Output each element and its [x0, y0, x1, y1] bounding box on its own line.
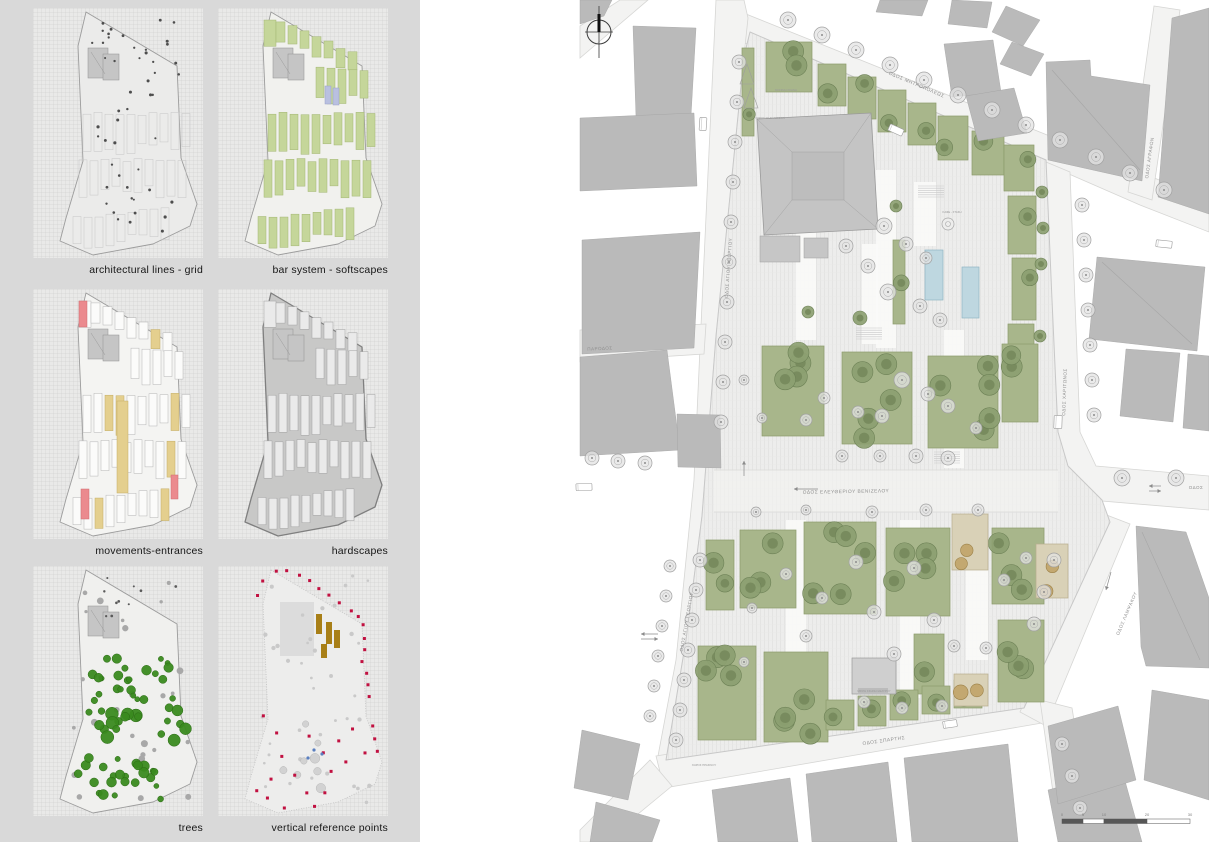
context-building — [1120, 349, 1180, 422]
context-building — [1089, 257, 1205, 351]
scale-tick-label: 30 — [1188, 812, 1193, 817]
street-label: ΟΔΟΣ — [1189, 485, 1204, 490]
diagram-bar-system-softscapes — [218, 8, 388, 258]
plan-annotation: ΧΩΡΟΣ ΕΚΔΗΛΩΣΕΩΝ — [755, 116, 785, 120]
plan-annotation: ΜΙΚΡΗ ΣΚΗΝΗ ΘΕΑΤΡΟΥ — [857, 689, 890, 693]
diagram-trees — [33, 566, 203, 816]
context-building — [904, 744, 1018, 842]
context-building — [582, 232, 700, 354]
concept-thumb-hardscapes: hardscapes — [218, 289, 388, 557]
caption-vertical-reference-points: vertical reference points — [218, 823, 388, 834]
context-building — [944, 40, 1001, 97]
concept-thumb-trees: trees — [33, 566, 203, 834]
green-bar — [1012, 258, 1036, 320]
caption-trees: trees — [33, 823, 203, 834]
caption-movements-entrances: movements-entrances — [33, 546, 203, 557]
diagram-vertical-reference-points — [218, 566, 388, 816]
fountain — [942, 218, 954, 230]
caption-hardscapes: hardscapes — [218, 546, 388, 557]
context-building — [580, 113, 697, 191]
scale-tick-label: 20 — [1145, 812, 1150, 817]
plan-annotation: ΜΟΝΙΜΗ ΣΚΗΝΗ — [775, 88, 797, 92]
concept-thumb-movements-entrances: movements-entrances — [33, 289, 203, 557]
plan-annotation: ΚΑΦΕ - ΣΤΑΣΗ — [942, 210, 961, 214]
concept-thumb-architectural-lines-grid: architectural lines - grid — [33, 8, 203, 276]
scale-tick-label: 10 — [1102, 812, 1107, 817]
annex-building — [804, 238, 828, 258]
diagram-architectural-lines-grid — [33, 8, 203, 258]
car — [699, 117, 707, 130]
context-building — [948, 0, 992, 28]
green-bar — [1008, 196, 1036, 254]
car — [576, 483, 592, 491]
paving-strip — [914, 182, 936, 246]
context-building — [580, 350, 680, 456]
diagram-movements-entrances — [33, 289, 203, 539]
concept-thumb-bar-system-softscapes: bar system - softscapes — [218, 8, 388, 276]
caption-bar-system-softscapes: bar system - softscapes — [218, 265, 388, 276]
green-bar — [706, 540, 734, 610]
water-pool — [962, 267, 979, 318]
concept-diagrams-panel: architectural lines - grid bar system - … — [0, 0, 420, 842]
context-building — [633, 26, 696, 117]
main-building — [757, 113, 878, 235]
car — [1156, 240, 1173, 249]
concept-thumb-vertical-reference-points: vertical reference points — [218, 566, 388, 834]
context-building — [806, 762, 897, 842]
car — [1054, 415, 1062, 428]
plan-annotation: ΧΩΡΟΣ ΠΡΑΣΙΝΟΥ — [692, 763, 717, 767]
diagram-hardscapes — [218, 289, 388, 539]
annex-building — [760, 236, 800, 262]
presentation-board: ΟΔΟΣ ΜΗΤΡΟΠΟΛΕΩΣΟΔΟΣ ΑΓΡΑΦΩΝΟΔΟΣ ΑΓΙΟΥ Γ… — [0, 0, 1209, 842]
caption-architectural-lines-grid: architectural lines - grid — [33, 265, 203, 276]
